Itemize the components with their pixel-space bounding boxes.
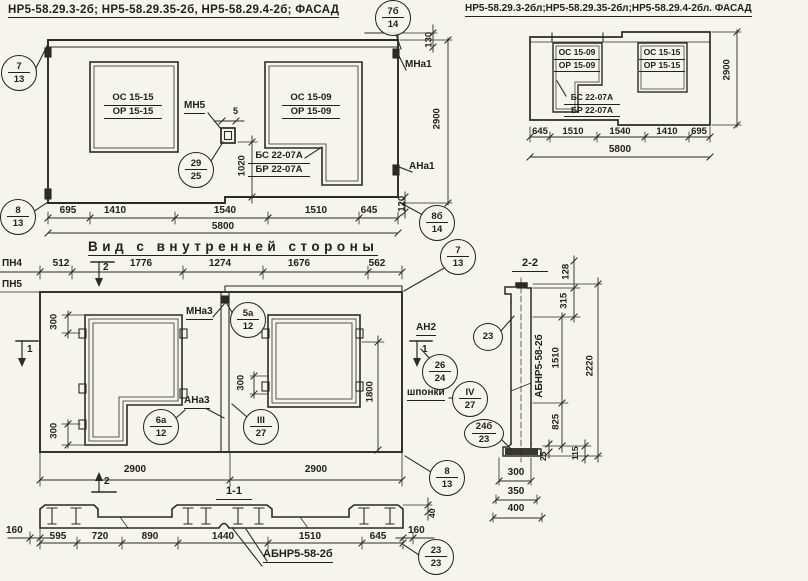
dim-595: 595: [38, 532, 78, 543]
window-mark-bottom: ОР 15-09: [554, 60, 600, 72]
bubble-top: 23: [431, 546, 442, 557]
panel-mark-label-vertical: АБНР5-58-2б: [535, 321, 545, 411]
ref-bubble-29-25: 29 25: [178, 152, 214, 188]
inner-view-title: Вид с внутренней стороны: [88, 240, 378, 256]
window-mark-os15-15: ОС 15-15 ОР 15-15: [639, 48, 685, 72]
bubble-bottom: 27: [250, 426, 272, 438]
dim-300: 300: [500, 468, 532, 479]
dim-2900-left: 2900: [115, 465, 155, 476]
facade-left-title: НР5-58.29.3-2б; НР5-58.29.35-2б, НР5-58.…: [8, 4, 339, 18]
dim-350: 350: [500, 487, 532, 498]
window-mark-top: ОС 15-09: [554, 48, 600, 60]
ref-bubble-8b-14: 8б 14: [419, 205, 455, 241]
window-mark-os15-15: ОС 15-15 ОР 15-15: [104, 93, 162, 119]
dim-1020: 1020: [237, 144, 247, 188]
label-pn5: ПН5: [2, 280, 22, 291]
section-mark-1-right: 1: [422, 345, 428, 356]
bubble-top: 24б: [476, 422, 492, 433]
ref-bubble-iii-27: III 27: [243, 409, 279, 445]
dim-695: 695: [48, 206, 88, 217]
bubble-top: 7б: [387, 7, 398, 18]
dim-5: 5: [233, 107, 238, 116]
anchor-label-ana1: АНа1: [409, 162, 435, 173]
lintel-mark-top: БС 22-07А: [248, 151, 310, 164]
dim-160-left: 160: [6, 526, 23, 537]
dim-645: 645: [358, 532, 398, 543]
bubble-bottom: 14: [426, 222, 448, 234]
bubble-top: 5а: [243, 309, 254, 320]
bubble-bottom: 14: [382, 17, 404, 29]
anchor-label-mna3: МНа3: [186, 307, 213, 320]
section-2-2-title: 2-2: [512, 258, 548, 272]
window-mark-os15-09: ОС 15-09 ОР 15-09: [282, 93, 340, 119]
bubble-top: 7: [455, 246, 460, 257]
bubble-bottom: 12: [237, 319, 259, 331]
bubble-bottom: 23: [425, 556, 447, 568]
bubble-bottom: 13: [447, 256, 469, 268]
dim-2900: 2900: [432, 97, 442, 141]
dim-120: 120: [397, 182, 407, 226]
dim-695: 695: [679, 127, 719, 137]
anchor-label-mn5: МН5: [184, 101, 205, 114]
ref-bubble-26-24: 26 24: [422, 354, 458, 390]
dim-300: 300: [49, 409, 59, 453]
dim-1410: 1410: [95, 206, 135, 217]
lintel-mark-bottom: БР 22-07А: [248, 164, 310, 177]
dim-720: 720: [80, 532, 120, 543]
bubble-value: 23: [483, 332, 494, 342]
section-mark-1-left: 1: [27, 345, 33, 356]
dim-1800: 1800: [365, 370, 375, 414]
lintel-mark-top: БС 22-07А: [564, 93, 620, 105]
dim-total-5800: 5800: [203, 222, 243, 233]
dim-1776: 1776: [121, 259, 161, 270]
window-mark-bottom: ОР 15-15: [104, 106, 162, 119]
dim-1440: 1440: [203, 532, 243, 543]
dim-total-5800: 5800: [600, 145, 640, 156]
window-mark-top: ОС 15-15: [104, 93, 162, 106]
bubble-bottom: 13: [7, 216, 29, 228]
dim-130: 130: [424, 18, 434, 62]
window-mark-bottom: ОР 15-09: [282, 106, 340, 119]
anchor-label-an2: АН2: [416, 323, 436, 336]
dim-25: 25: [539, 434, 548, 478]
bubble-top: 6а: [156, 416, 167, 427]
window-mark-bottom: ОР 15-15: [639, 60, 685, 72]
dim-1676: 1676: [279, 259, 319, 270]
dim-2900-right: 2900: [296, 465, 336, 476]
dim-1274: 1274: [200, 259, 240, 270]
lintel-mark: БС 22-07А БР 22-07А: [564, 93, 620, 117]
bubble-top: 29: [191, 159, 202, 170]
bubble-top: 8: [15, 206, 20, 217]
panel-drawing-sheet: НР5-58.29.3-2б; НР5-58.29.35-2б, НР5-58.…: [0, 0, 808, 581]
bubble-top: 8: [444, 467, 449, 478]
dim-2900: 2900: [722, 48, 732, 92]
ref-bubble-7b-14: 7б 14: [375, 0, 411, 36]
anchor-label-ana3: АНа3: [184, 396, 210, 409]
dim-1510: 1510: [551, 336, 561, 380]
window-mark-top: ОС 15-09: [282, 93, 340, 106]
dim-300: 300: [236, 361, 246, 405]
bubble-bottom: 27: [459, 398, 481, 410]
ref-bubble-5a-12: 5а 12: [230, 302, 266, 338]
dim-1510: 1510: [296, 206, 336, 217]
dim-825: 825: [551, 400, 561, 444]
dim-315: 315: [559, 279, 569, 323]
dim-562: 562: [357, 259, 397, 270]
dim-512: 512: [41, 259, 81, 270]
ref-bubble-23: 23: [473, 323, 503, 351]
bubble-bottom: 25: [185, 169, 207, 181]
bubble-top: 26: [435, 361, 446, 372]
dim-645: 645: [349, 206, 389, 217]
bubble-top: 8б: [431, 212, 442, 223]
bubble-bottom: 12: [150, 426, 172, 438]
bubble-bottom: 23: [472, 433, 497, 445]
ref-bubble-iv-27: IV 27: [452, 381, 488, 417]
ref-bubble-7-13: 7 13: [440, 239, 476, 275]
dim-300: 300: [49, 300, 59, 344]
ref-bubble-8-13: 8 13: [0, 199, 36, 235]
drawing-linework: [0, 0, 808, 581]
bubble-top: IV: [466, 388, 475, 399]
section-1-1-title: 1-1: [216, 486, 252, 500]
label-pn4: ПН4: [2, 259, 22, 270]
ref-bubble-6a-12: 6а 12: [143, 409, 179, 445]
dim-2220: 2220: [585, 344, 595, 388]
window-mark-top: ОС 15-15: [639, 48, 685, 60]
bubble-top: 7: [16, 62, 21, 73]
bubble-top: III: [257, 416, 265, 427]
ref-bubble-23-23: 23 23: [418, 539, 454, 575]
bubble-bottom: 13: [436, 477, 458, 489]
ref-bubble-7-13: 7 13: [1, 55, 37, 91]
lintel-mark-bottom: БР 22-07А: [564, 105, 620, 117]
dim-160-right: 160: [408, 526, 425, 537]
ref-bubble-24b-23: 24б 23: [464, 419, 504, 448]
section-mark-2-bottom: 2: [104, 477, 110, 488]
dim-400: 400: [500, 504, 532, 515]
facade-right-title: НР5-58.29.3-2бл;НР5-58.29.35-2бл;НР5-58.…: [465, 4, 752, 17]
dim-40: 40: [428, 491, 437, 535]
panel-mark-label: АБНР5-58-2б: [263, 549, 333, 563]
dim-1510: 1510: [553, 127, 593, 137]
dim-115: 115: [571, 431, 580, 475]
section-mark-2-top: 2: [103, 263, 109, 274]
dim-1540: 1540: [205, 206, 245, 217]
dim-890: 890: [130, 532, 170, 543]
bubble-bottom: 13: [8, 72, 30, 84]
dim-1540: 1540: [600, 127, 640, 137]
window-mark-os15-09: ОС 15-09 ОР 15-09: [554, 48, 600, 72]
bubble-bottom: 24: [429, 371, 451, 383]
dim-1510: 1510: [290, 532, 330, 543]
lintel-mark: БС 22-07А БР 22-07А: [248, 151, 310, 177]
